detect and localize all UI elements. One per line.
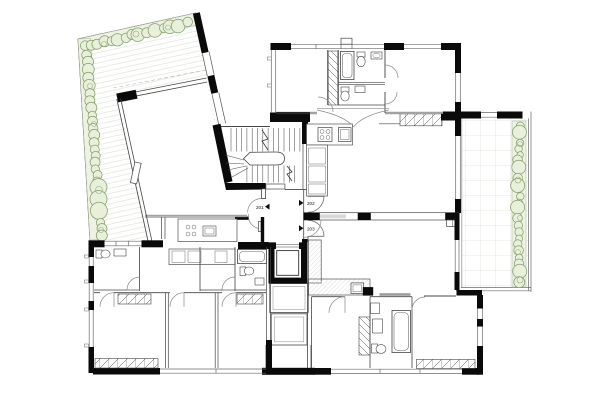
svg-text:202: 202 — [307, 201, 315, 206]
svg-text:201: 201 — [256, 205, 264, 210]
svg-text:203: 203 — [307, 227, 315, 232]
